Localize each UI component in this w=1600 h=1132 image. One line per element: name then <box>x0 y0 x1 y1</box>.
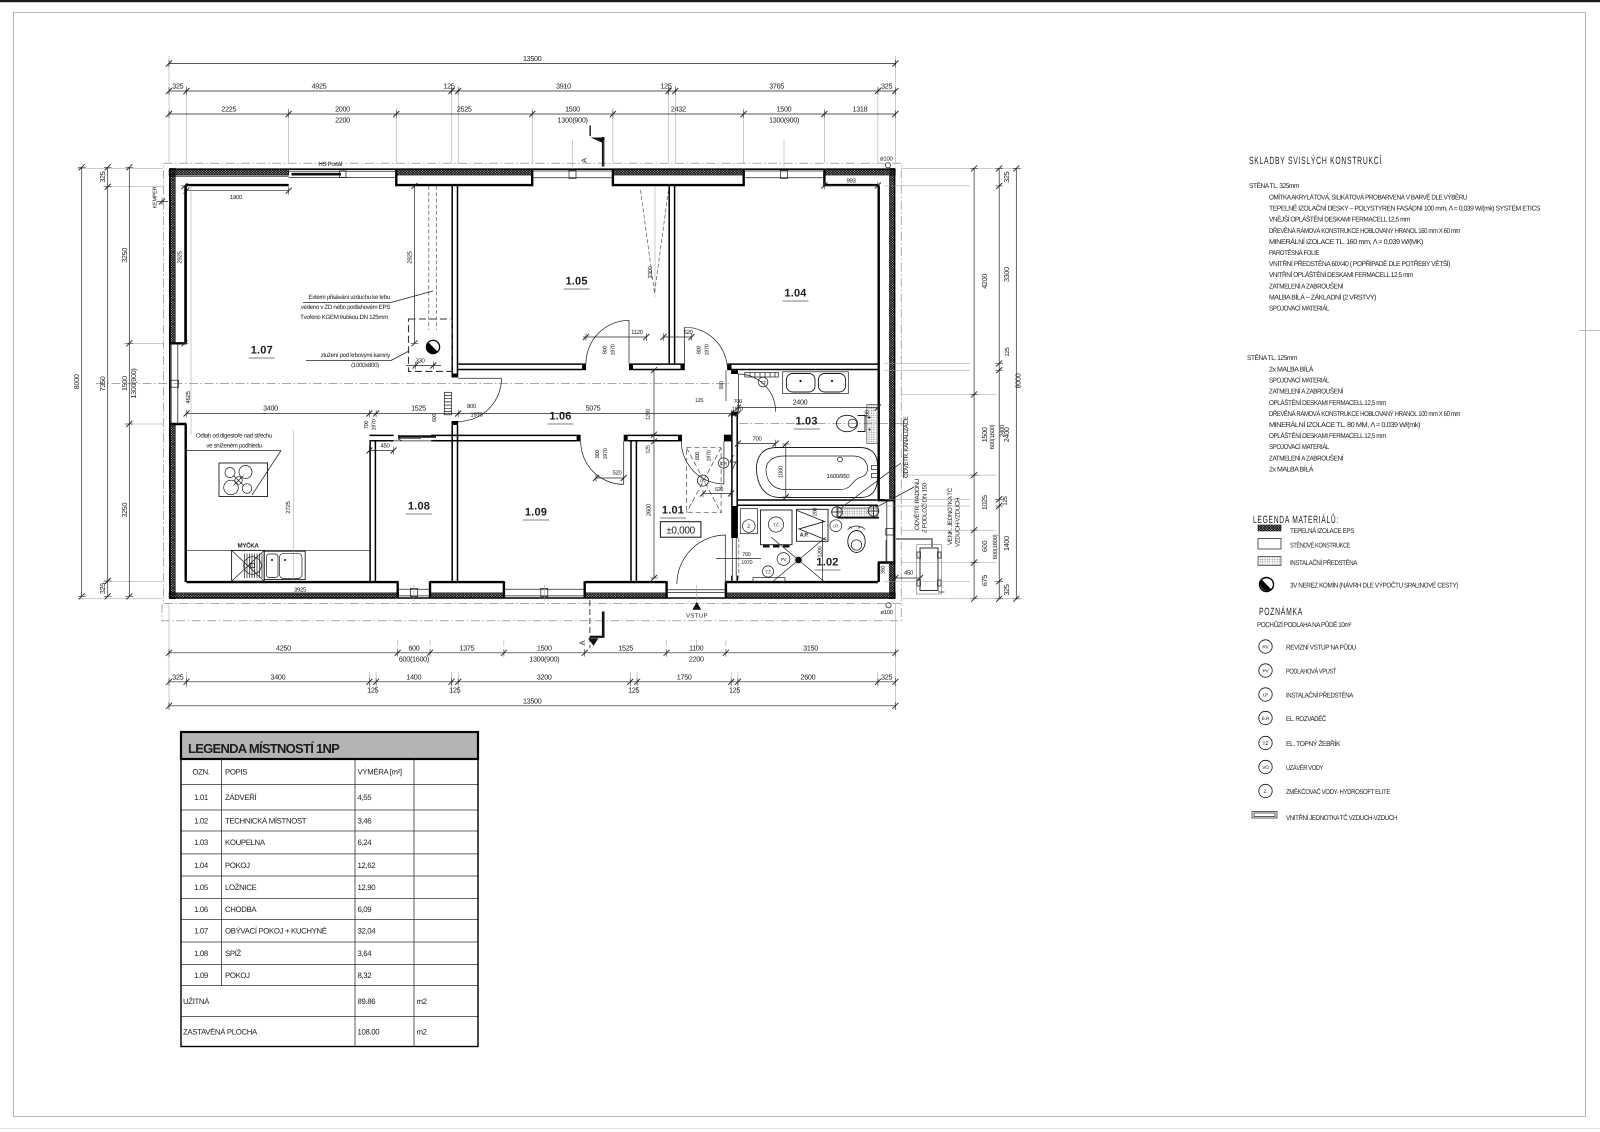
svg-text:E.R: E.R <box>1262 716 1270 722</box>
svg-text:4625: 4625 <box>185 390 192 403</box>
svg-text:HS Portál: HS Portál <box>318 161 341 168</box>
svg-text:VNĚJŠÍ OPLÁŠTĚNÍ DESKAMI FERMA: VNĚJŠÍ OPLÁŠTĚNÍ DESKAMI FERMACELL 12,5 … <box>1269 215 1411 224</box>
svg-text:325: 325 <box>881 672 892 681</box>
svg-text:INSTALAČNÍ PŘEDSTĚNA: INSTALAČNÍ PŘEDSTĚNA <box>1290 558 1358 567</box>
svg-text:ZATMELENÍ A ZABROUŠENÍ: ZATMELENÍ A ZABROUŠENÍ <box>1269 281 1343 290</box>
svg-text:8,32: 8,32 <box>358 971 372 980</box>
svg-text:DŘEVĚNÁ RÁMOVÁ KONSTRUKCE HOBL: DŘEVĚNÁ RÁMOVÁ KONSTRUKCE HOBLOVANÝ HRAN… <box>1269 226 1461 235</box>
svg-text:MINERÁLNÍ IZOLACE TL. 160 mm,: MINERÁLNÍ IZOLACE TL. 160 mm, Λ = 0,039 … <box>1269 237 1423 246</box>
svg-text:1300(900): 1300(900) <box>558 116 588 125</box>
svg-text:800: 800 <box>467 403 477 410</box>
svg-text:520: 520 <box>715 487 724 493</box>
svg-text:A: A <box>580 158 589 163</box>
svg-text:1400: 1400 <box>1002 536 1011 551</box>
svg-text:OPLÁŠTĚNÍ DESKAMI FERMACELL 12: OPLÁŠTĚNÍ DESKAMI FERMACELL 12,5 mm <box>1269 398 1387 407</box>
svg-text:1525: 1525 <box>618 643 633 652</box>
svg-text:1900: 1900 <box>230 194 243 201</box>
svg-text:E.R: E.R <box>720 461 727 466</box>
svg-text:325: 325 <box>1002 584 1011 595</box>
svg-text:Z PODLOŽÍ DN 150: Z PODLOŽÍ DN 150 <box>921 482 929 533</box>
svg-text:ve sníženém podhledu: ve sníženém podhledu <box>206 443 262 450</box>
svg-text:VNITŘNÍ JEDNOTKA TČ VZDUCH-VZD: VNITŘNÍ JEDNOTKA TČ VZDUCH-VZDUCH <box>1286 813 1397 822</box>
svg-text:2400: 2400 <box>999 424 1006 437</box>
svg-text:ø100: ø100 <box>880 609 893 616</box>
svg-text:TECHNICKÁ MÍSTNOST: TECHNICKÁ MÍSTNOST <box>225 816 307 825</box>
svg-text:Z: Z <box>747 524 750 530</box>
svg-text:ztužení pod krbovými kamny: ztužení pod krbovými kamny <box>321 352 392 359</box>
svg-text:SKLADBY SVISLÝCH KONSTRUKCÍ: SKLADBY SVISLÝCH KONSTRUKCÍ <box>1249 154 1382 167</box>
svg-text:OZN.: OZN. <box>192 768 209 777</box>
svg-text:1300(900): 1300(900) <box>129 369 138 399</box>
svg-text:125: 125 <box>443 82 454 91</box>
svg-text:I.P.: I.P. <box>833 524 838 529</box>
svg-text:1500: 1500 <box>537 643 552 652</box>
svg-text:1.05: 1.05 <box>565 276 587 288</box>
svg-text:UŽITNÁ: UŽITNÁ <box>183 997 210 1006</box>
svg-text:89.86: 89.86 <box>358 997 376 1006</box>
svg-text:2200: 2200 <box>335 116 350 125</box>
svg-text:6,24: 6,24 <box>358 838 373 847</box>
svg-text:1375: 1375 <box>460 643 475 652</box>
svg-text:1970: 1970 <box>707 450 713 461</box>
svg-text:1.01: 1.01 <box>662 505 684 517</box>
svg-text:vedeno v ZD nebo podlahovém EP: vedeno v ZD nebo podlahovém EPS <box>301 304 390 311</box>
svg-text:VSTUP: VSTUP <box>686 613 708 620</box>
svg-text:450: 450 <box>380 443 390 450</box>
svg-text:PODLAHOVÁ VPUSŤ: PODLAHOVÁ VPUSŤ <box>1286 666 1337 675</box>
svg-text:1300(900): 1300(900) <box>529 654 559 663</box>
svg-text:1500: 1500 <box>980 427 989 442</box>
svg-text:4925: 4925 <box>312 82 327 91</box>
svg-text:125: 125 <box>1002 495 1009 505</box>
svg-text:VNITŘNÍ PŘEDSTĚNA 60X40 ( POPŘ: VNITŘNÍ PŘEDSTĚNA 60X40 ( POPŘÍPADĚ DLE … <box>1269 259 1450 268</box>
svg-text:1500: 1500 <box>120 376 129 391</box>
svg-text:450: 450 <box>904 570 914 577</box>
svg-text:125: 125 <box>449 686 460 695</box>
svg-text:CHODBA: CHODBA <box>225 905 257 914</box>
svg-text:±0,000: ±0,000 <box>666 526 695 537</box>
svg-text:KOUPELNA: KOUPELNA <box>225 838 266 847</box>
svg-text:SPÍŽ: SPÍŽ <box>225 949 242 958</box>
svg-text:1970: 1970 <box>603 448 609 459</box>
svg-text:3300: 3300 <box>1002 267 1011 282</box>
svg-text:MALBA BÍLÁ – ZÁKLADNÍ (2 VRSTV: MALBA BÍLÁ – ZÁKLADNÍ (2 VRSTVY) <box>1269 292 1376 301</box>
svg-text:SPOJOVACÍ MATERIÁL: SPOJOVACÍ MATERIÁL <box>1269 442 1329 451</box>
svg-text:325: 325 <box>172 82 183 91</box>
svg-text:EL. ROZVADĚČ: EL. ROZVADĚČ <box>1286 714 1326 723</box>
svg-text:1.03: 1.03 <box>795 416 817 428</box>
svg-text:3400: 3400 <box>263 404 278 413</box>
svg-text:VÝMĚRA [m²]: VÝMĚRA [m²] <box>358 768 402 777</box>
svg-text:A: A <box>578 640 587 645</box>
svg-text:1.09: 1.09 <box>525 507 547 519</box>
svg-text:1525: 1525 <box>411 404 426 413</box>
svg-text:600(1600): 600(1600) <box>399 654 429 663</box>
svg-text:125: 125 <box>646 445 652 454</box>
svg-text:1970: 1970 <box>705 344 711 355</box>
svg-text:STĚNOVÉ KONSTRUKCE: STĚNOVÉ KONSTRUKCE <box>1290 541 1351 550</box>
svg-text:3400: 3400 <box>271 672 286 681</box>
svg-text:1.05: 1.05 <box>194 883 209 892</box>
svg-text:STĚNA TL. 125mm: STĚNA TL. 125mm <box>1247 353 1298 362</box>
svg-text:2x MALBA BÍLÁ: 2x MALBA BÍLÁ <box>1269 365 1314 374</box>
svg-text:1200: 1200 <box>646 409 652 420</box>
svg-text:325: 325 <box>172 672 183 681</box>
svg-text:LOŽNICE: LOŽNICE <box>225 883 256 892</box>
svg-text:ø100: ø100 <box>880 155 893 162</box>
svg-text:1.03: 1.03 <box>194 838 208 847</box>
svg-text:800: 800 <box>595 450 601 459</box>
svg-text:TEPELNÁ IZOLACE EPS: TEPELNÁ IZOLACE EPS <box>1290 526 1355 535</box>
svg-text:1600/950: 1600/950 <box>827 473 851 480</box>
svg-text:SPOJOVACÍ MATERIÁL: SPOJOVACÍ MATERIÁL <box>1269 304 1329 313</box>
svg-text:LEGENDA MÍSTNOSTÍ 1NP: LEGENDA MÍSTNOSTÍ 1NP <box>188 741 340 756</box>
svg-text:1.04: 1.04 <box>784 288 807 300</box>
svg-text:520: 520 <box>612 470 622 477</box>
svg-text:200: 200 <box>865 410 871 419</box>
svg-text:3300: 3300 <box>647 265 654 278</box>
svg-text:3925: 3925 <box>294 587 307 594</box>
svg-text:REVIZNÍ VSTUP NA PŮDU: REVIZNÍ VSTUP NA PŮDU <box>1286 642 1356 651</box>
svg-text:RV: RV <box>1262 644 1269 650</box>
svg-text:600: 600 <box>408 643 419 652</box>
svg-text:3250: 3250 <box>120 248 129 263</box>
svg-text:Odtah od digestoře nad střech: Odtah od digestoře nad střechu <box>196 433 273 440</box>
svg-text:108.00: 108.00 <box>358 1027 381 1036</box>
svg-text:ZATMELENÍ A ZABROUŠENÍ: ZATMELENÍ A ZABROUŠENÍ <box>1269 453 1343 462</box>
svg-text:2400: 2400 <box>793 398 808 407</box>
svg-text:3150: 3150 <box>803 643 818 652</box>
svg-text:1970: 1970 <box>470 412 483 419</box>
svg-text:DŘEVĚNÁ RÁMOVÁ KONSTRUKCE HOBL: DŘEVĚNÁ RÁMOVÁ KONSTRUKCE HOBLOVANÝ HRAN… <box>1269 409 1461 418</box>
svg-text:3765: 3765 <box>769 82 784 91</box>
svg-text:OBÝVACÍ POKOJ + KUCHYNĚ: OBÝVACÍ POKOJ + KUCHYNĚ <box>225 927 327 936</box>
svg-text:T.Č: T.Č <box>773 522 779 527</box>
svg-text:1.06: 1.06 <box>194 905 208 914</box>
svg-text:325: 325 <box>98 171 107 182</box>
svg-text:m2: m2 <box>417 1027 427 1036</box>
svg-text:2600: 2600 <box>801 672 816 681</box>
svg-text:3,46: 3,46 <box>358 816 372 825</box>
svg-text:2925: 2925 <box>177 250 184 263</box>
svg-text:A.P.: A.P. <box>800 533 809 539</box>
svg-text:7350: 7350 <box>98 376 107 391</box>
svg-text:PV: PV <box>781 557 787 562</box>
svg-text:UZÁVĚR VODY: UZÁVĚR VODY <box>1286 763 1324 772</box>
svg-text:1750: 1750 <box>677 672 692 681</box>
svg-text:1.08: 1.08 <box>194 949 208 958</box>
svg-text:700: 700 <box>364 421 370 430</box>
svg-text:2x MALBA BÍLÁ: 2x MALBA BÍLÁ <box>1269 464 1314 473</box>
svg-text:8000: 8000 <box>72 374 81 389</box>
svg-text:2432: 2432 <box>671 105 686 114</box>
svg-text:PAROTĚSNÁ FOLIE: PAROTĚSNÁ FOLIE <box>1269 248 1320 257</box>
svg-text:125: 125 <box>367 686 378 695</box>
svg-text:350: 350 <box>881 566 887 575</box>
svg-text:5075: 5075 <box>586 404 601 413</box>
svg-text:1300(900): 1300(900) <box>769 116 799 125</box>
svg-text:1100: 1100 <box>689 643 704 652</box>
svg-text:STĚNA TL. 325mm: STĚNA TL. 325mm <box>1249 181 1300 190</box>
svg-text:1.04: 1.04 <box>194 861 209 870</box>
svg-text:993: 993 <box>846 178 856 185</box>
svg-text:325: 325 <box>1002 171 1011 182</box>
svg-text:600(1600): 600(1600) <box>992 534 999 559</box>
svg-text:700: 700 <box>752 436 762 443</box>
svg-text:POKOJ: POKOJ <box>225 971 250 980</box>
svg-text:200: 200 <box>813 508 819 517</box>
svg-text:1.07: 1.07 <box>194 927 208 936</box>
svg-text:1000: 1000 <box>778 465 785 478</box>
svg-text:4250: 4250 <box>276 643 291 652</box>
svg-text:KEMPER: KEMPER <box>153 186 159 208</box>
svg-text:1.01: 1.01 <box>194 793 208 802</box>
svg-text:325: 325 <box>98 583 107 594</box>
svg-text:POCHŮZÍ PODLAHA NA PŮDĚ 10m²: POCHŮZÍ PODLAHA NA PŮDĚ 10m² <box>1257 620 1352 629</box>
svg-text:VENK. JEDNOTKA TČ: VENK. JEDNOTKA TČ <box>946 487 954 545</box>
svg-text:ZASTAVĚNÁ PLOCHA: ZASTAVĚNÁ PLOCHA <box>183 1027 258 1036</box>
svg-text:125: 125 <box>1004 346 1011 356</box>
svg-text:ZATMELENÍ A ZABROUŠENÍ: ZATMELENÍ A ZABROUŠENÍ <box>1269 387 1343 396</box>
svg-text:3910: 3910 <box>556 82 571 91</box>
svg-text:POZNÁMKA: POZNÁMKA <box>1259 605 1303 618</box>
svg-text:Z.: Z. <box>1264 789 1268 795</box>
svg-text:Externí přisávání vzduchu ke k: Externí přisávání vzduchu ke krbu <box>308 294 391 301</box>
svg-text:700: 700 <box>742 552 751 558</box>
svg-text:1318: 1318 <box>853 105 868 114</box>
svg-text:(1000x800): (1000x800) <box>351 362 379 369</box>
svg-text:6,09: 6,09 <box>358 905 372 914</box>
svg-text:OPLÁŠTĚNÍ DESKAMI FERMACELL 12: OPLÁŠTĚNÍ DESKAMI FERMACELL 12,5 mm <box>1269 431 1387 440</box>
svg-text:1970: 1970 <box>741 560 752 566</box>
svg-text:T.Ž: T.Ž <box>765 569 771 574</box>
svg-text:ZÁDVEŘÍ: ZÁDVEŘÍ <box>225 793 258 802</box>
svg-text:POKOJ: POKOJ <box>225 861 250 870</box>
svg-text:VZDUCH-VZDUCH: VZDUCH-VZDUCH <box>955 498 962 547</box>
svg-text:ZMĚKČOVAČ VODY- HYDROSOFT ELIT: ZMĚKČOVAČ VODY- HYDROSOFT ELITE <box>1286 787 1391 796</box>
svg-text:800: 800 <box>697 346 703 355</box>
svg-text:32,04: 32,04 <box>358 927 377 936</box>
svg-text:580: 580 <box>719 381 725 390</box>
svg-text:2225: 2225 <box>221 105 236 114</box>
svg-text:4200: 4200 <box>980 274 989 289</box>
svg-text:EL. TOPNÝ ŽEBŘÍK: EL. TOPNÝ ŽEBŘÍK <box>1286 739 1341 748</box>
svg-text:800: 800 <box>603 346 609 355</box>
svg-text:1.07: 1.07 <box>251 345 273 357</box>
svg-text:MYČKA: MYČKA <box>238 542 260 550</box>
svg-text:600: 600 <box>432 414 438 423</box>
svg-text:3200: 3200 <box>537 672 552 681</box>
svg-text:125: 125 <box>729 686 740 695</box>
svg-text:1400: 1400 <box>406 672 421 681</box>
svg-text:800: 800 <box>695 452 701 461</box>
svg-text:T.Ž: T.Ž <box>760 380 766 385</box>
svg-text:13500: 13500 <box>523 696 542 705</box>
svg-text:TEPELNĚ IZOLAČNÍ DESKY – POLYS: TEPELNĚ IZOLAČNÍ DESKY – POLYSTYREN FASÁ… <box>1269 204 1541 213</box>
svg-text:1.02: 1.02 <box>194 816 208 825</box>
svg-text:T.Ž: T.Ž <box>1262 740 1268 747</box>
svg-text:125: 125 <box>628 686 639 695</box>
svg-text:MINERÁLNÍ IZOLACE TL. 80 MM, Λ: MINERÁLNÍ IZOLACE TL. 80 MM, Λ = 0,039 W… <box>1269 420 1420 429</box>
svg-text:8000: 8000 <box>1014 373 1023 388</box>
svg-text:RV: RV <box>700 478 706 483</box>
svg-text:1.09: 1.09 <box>194 971 208 980</box>
svg-text:325: 325 <box>881 82 892 91</box>
svg-text:1120: 1120 <box>631 329 644 336</box>
svg-text:PV: PV <box>1263 668 1270 674</box>
svg-text:3250: 3250 <box>120 503 129 518</box>
svg-text:2000: 2000 <box>335 105 350 114</box>
svg-text:1970: 1970 <box>611 344 617 355</box>
svg-text:POPIS: POPIS <box>225 768 247 777</box>
svg-text:675: 675 <box>980 575 989 586</box>
svg-text:2200: 2200 <box>689 654 704 663</box>
svg-text:2600: 2600 <box>646 503 653 516</box>
svg-text:1500: 1500 <box>565 105 580 114</box>
svg-text:I.P: I.P <box>1263 692 1268 698</box>
svg-text:ODVĚTR. RADONU: ODVĚTR. RADONU <box>913 479 921 530</box>
svg-text:Tvořeno KGEM trubkou DN 125mm: Tvořeno KGEM trubkou DN 125mm <box>300 314 388 321</box>
svg-text:3V NEREZ KOMÍN (NÁVRH DLE VÝPO: 3V NEREZ KOMÍN (NÁVRH DLE VÝPOČTU SPALIN… <box>1290 581 1458 590</box>
svg-text:1.06: 1.06 <box>549 411 571 423</box>
svg-text:600(1600): 600(1600) <box>989 424 996 449</box>
svg-text:1.08: 1.08 <box>408 501 430 513</box>
svg-text:12,90: 12,90 <box>358 883 377 892</box>
svg-text:VO: VO <box>1262 765 1269 771</box>
svg-text:INSTALAČNÍ PŘEDSTĚNA: INSTALAČNÍ PŘEDSTĚNA <box>1286 690 1354 699</box>
svg-text:2525: 2525 <box>457 105 472 114</box>
svg-text:12,62: 12,62 <box>358 861 376 870</box>
svg-text:600: 600 <box>980 541 989 552</box>
svg-text:4,55: 4,55 <box>358 793 373 802</box>
svg-text:LEGENDA MATERIÁLŮ:: LEGENDA MATERIÁLŮ: <box>1253 513 1339 526</box>
svg-text:1025: 1025 <box>980 495 989 510</box>
svg-text:3,64: 3,64 <box>358 949 373 958</box>
svg-text:13500: 13500 <box>523 54 542 63</box>
svg-text:2925: 2925 <box>407 250 414 263</box>
svg-text:520: 520 <box>683 329 693 336</box>
svg-text:OMÍTKA AKRYLÁTOVÁ, SILIKÁTOVÁ: OMÍTKA AKRYLÁTOVÁ, SILIKÁTOVÁ PROBARVENÁ… <box>1269 193 1467 202</box>
svg-text:SPOJOVACÍ MATERIÁL: SPOJOVACÍ MATERIÁL <box>1269 376 1329 385</box>
svg-text:m2: m2 <box>417 997 427 1006</box>
svg-text:1970: 1970 <box>372 419 378 430</box>
svg-text:VNITŘNÍ OPLÁŠTĚNÍ DESKAMI FERM: VNITŘNÍ OPLÁŠTĚNÍ DESKAMI FERMACELL 12,5… <box>1269 270 1414 279</box>
svg-text:125: 125 <box>695 398 704 404</box>
svg-text:330: 330 <box>415 358 425 365</box>
svg-text:1.02: 1.02 <box>816 557 838 569</box>
svg-text:2725: 2725 <box>285 500 292 513</box>
svg-text:1500: 1500 <box>777 105 792 114</box>
svg-text:125: 125 <box>660 82 671 91</box>
